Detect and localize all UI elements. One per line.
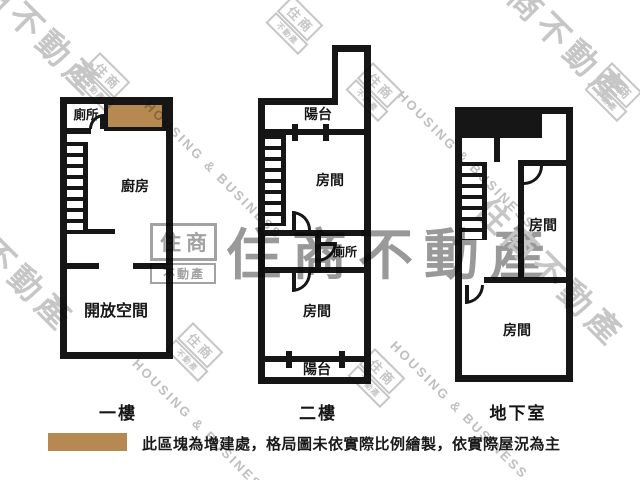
watermark-minilogo-line1: 住商 xyxy=(84,52,131,99)
room-label-room-upper: 房間 xyxy=(503,218,583,233)
door-arc-room-lower xyxy=(465,285,484,304)
wall xyxy=(88,229,115,234)
wall xyxy=(258,98,265,384)
room-label-room-upper: 房間 xyxy=(290,173,370,188)
window-tick xyxy=(323,124,329,141)
floorplan-canvas: 廁所 廚房 開放空間 陽台 房間 廁所 xyxy=(0,0,640,480)
stairs xyxy=(67,142,88,234)
wall xyxy=(265,267,364,273)
legend-note: 此區塊為增建處，格局圖未依實際比例繪製，依實際屋況為主 xyxy=(142,433,561,454)
wall xyxy=(258,98,338,105)
plan-first-floor: 廁所 廚房 開放空間 xyxy=(60,97,173,359)
wall xyxy=(332,45,338,105)
watermark-brand-diagonal: 住商不動產 xyxy=(0,0,116,107)
door-arc-room-upper xyxy=(524,166,543,185)
watermark-minilogo-line1: 住商 xyxy=(596,62,640,109)
watermark-minilogo: 住商 不動產 xyxy=(584,62,640,122)
room-label-kitchen: 廚房 xyxy=(105,179,165,194)
room-label-toilet: 廁所 xyxy=(315,246,375,259)
room-label-balcony-top: 陽台 xyxy=(278,107,358,122)
wall xyxy=(67,128,91,134)
wall xyxy=(494,138,500,162)
wall xyxy=(484,277,566,283)
watermark-minilogo-line1: 住商 xyxy=(177,322,224,369)
legend-addition-swatch xyxy=(48,433,127,451)
floor-label-second: 二樓 xyxy=(258,399,378,424)
window-tick xyxy=(292,124,298,141)
plan-basement: 房間 房間 xyxy=(455,107,573,382)
stairs xyxy=(462,162,487,240)
watermark-minilogo: 住商 不動產 xyxy=(165,322,225,382)
watermark-minilogo-line1: 住商 xyxy=(277,0,324,42)
room-label-room-lower: 房間 xyxy=(277,304,357,319)
room-label-room-lower: 房間 xyxy=(477,323,557,338)
room-label-balcony-bottom: 陽台 xyxy=(277,362,357,377)
door-arc-room-lower xyxy=(292,273,311,292)
wall xyxy=(364,45,371,384)
plan-second-floor: 陽台 房間 廁所 房間 陽台 xyxy=(258,45,371,384)
addition-block xyxy=(104,101,166,131)
stairs xyxy=(265,135,286,226)
wall xyxy=(133,263,166,269)
floor-label-first: 一樓 xyxy=(58,399,178,424)
room-label-open-space: 開放空間 xyxy=(76,303,156,321)
watermark-minilogo-line2: 不動產 xyxy=(584,79,627,122)
black-block xyxy=(455,107,542,138)
wall xyxy=(258,377,371,384)
watermark-brand-diagonal: 住商不動產 xyxy=(471,0,640,117)
door-arc-room-upper xyxy=(292,211,311,230)
floor-label-basement: 地下室 xyxy=(458,399,578,424)
room-label-toilet: 廁所 xyxy=(67,109,105,123)
wall xyxy=(67,263,99,269)
